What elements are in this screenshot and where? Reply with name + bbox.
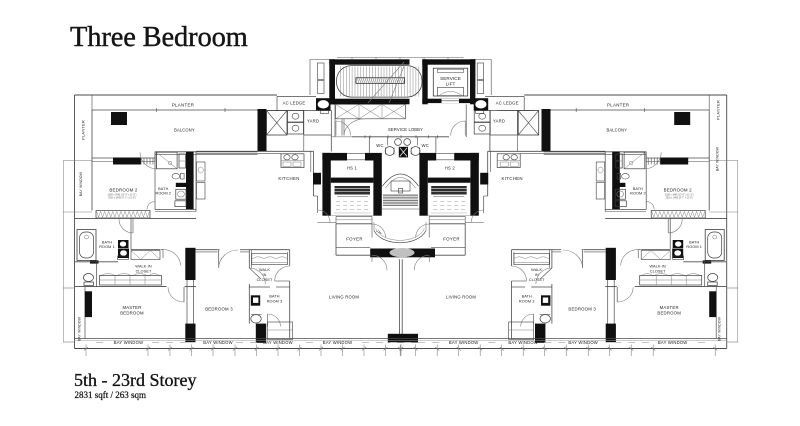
svg-text:ROOM 2: ROOM 2: [156, 192, 172, 196]
svg-text:WALK-IN: WALK-IN: [135, 265, 152, 269]
svg-text:BEDROOM 2: BEDROOM 2: [664, 187, 693, 192]
svg-text:SERVICE LOBBY: SERVICE LOBBY: [388, 127, 423, 132]
svg-text:BAY WINDOW: BAY WINDOW: [323, 340, 353, 345]
svg-text:CLOSET: CLOSET: [650, 270, 666, 274]
svg-text:BATH: BATH: [269, 295, 279, 299]
svg-text:3280 x 3485 (10'-9" x 11'-5"): 3280 x 3485 (10'-9" x 11'-5"): [665, 195, 694, 197]
svg-text:HS 2: HS 2: [445, 166, 456, 171]
svg-text:LIVING ROOM: LIVING ROOM: [329, 295, 359, 300]
svg-text:ROOM 3: ROOM 3: [267, 300, 283, 304]
svg-text:LIVING ROOM: LIVING ROOM: [446, 295, 476, 300]
svg-text:FOYER: FOYER: [443, 236, 460, 241]
svg-text:ROOM 3: ROOM 3: [519, 300, 535, 304]
svg-text:BAY WINDOW: BAY WINDOW: [114, 340, 144, 345]
svg-text:BAY WINDOW: BAY WINDOW: [78, 316, 82, 341]
svg-text:WALK-IN: WALK-IN: [650, 265, 667, 269]
svg-text:ROOM 1: ROOM 1: [99, 245, 115, 249]
svg-text:WC: WC: [376, 143, 383, 148]
svg-text:BAY WINDOW: BAY WINDOW: [203, 340, 233, 345]
svg-text:AC LEDGE: AC LEDGE: [496, 100, 519, 105]
svg-text:KITCHEN: KITCHEN: [278, 176, 299, 181]
svg-text:3280 x 3485 (10'-9" x 11'-5"): 3280 x 3485 (10'-9" x 11'-5"): [108, 195, 137, 197]
svg-text:LIFT: LIFT: [446, 81, 456, 86]
svg-text:BATH: BATH: [522, 295, 532, 299]
svg-text:2920 x 3485 (9'-7" x 11'-5"): 2920 x 3485 (9'-7" x 11'-5"): [108, 198, 136, 200]
svg-text:BAY WINDOW: BAY WINDOW: [658, 340, 688, 345]
svg-text:BALCONY: BALCONY: [174, 128, 195, 133]
svg-text:WALK: WALK: [531, 268, 542, 272]
svg-text:KITCHEN: KITCHEN: [502, 176, 523, 181]
svg-text:WALK: WALK: [259, 268, 270, 272]
svg-text:AC LEDGE: AC LEDGE: [283, 100, 306, 105]
svg-text:BEDROOM: BEDROOM: [120, 311, 144, 316]
svg-text:ROOM 1: ROOM 1: [686, 245, 702, 249]
svg-text:PLANTER: PLANTER: [172, 103, 194, 108]
svg-text:BAY WINDOW: BAY WINDOW: [718, 316, 722, 341]
svg-text:MASTER: MASTER: [122, 305, 141, 310]
svg-text:BAY WINDOW: BAY WINDOW: [263, 340, 293, 345]
svg-text:PLANTER: PLANTER: [607, 103, 629, 108]
svg-text:BAY WINDOW: BAY WINDOW: [449, 340, 479, 345]
svg-text:BALCONY: BALCONY: [606, 128, 627, 133]
svg-text:2920 x 3485 (9'-7" x 11'-5"): 2920 x 3485 (9'-7" x 11'-5"): [665, 198, 693, 200]
svg-text:BEDROOM 3: BEDROOM 3: [568, 307, 596, 312]
svg-text:IN: IN: [535, 273, 539, 277]
svg-text:HS 1: HS 1: [347, 166, 358, 171]
svg-text:BAY WINDOW: BAY WINDOW: [79, 171, 83, 196]
svg-text:BEDROOM: BEDROOM: [657, 311, 681, 316]
svg-text:BEDROOM 3: BEDROOM 3: [205, 307, 233, 312]
svg-text:YARD: YARD: [493, 119, 505, 124]
svg-text:PLANTER: PLANTER: [81, 120, 86, 140]
svg-text:BATH: BATH: [158, 187, 168, 191]
svg-text:BATH: BATH: [689, 241, 699, 245]
svg-text:BATH: BATH: [102, 241, 112, 245]
svg-text:ROOM 2: ROOM 2: [630, 192, 646, 196]
svg-text:BATH: BATH: [633, 187, 643, 191]
svg-text:WC: WC: [422, 143, 429, 148]
svg-text:SERVICE: SERVICE: [440, 76, 461, 81]
svg-text:BEDROOM 2: BEDROOM 2: [109, 187, 138, 192]
svg-text:BAY WINDOW: BAY WINDOW: [568, 340, 598, 345]
svg-text:PLANTER: PLANTER: [716, 100, 721, 120]
svg-text:CLOSET: CLOSET: [136, 270, 152, 274]
svg-text:BAY WINDOW: BAY WINDOW: [508, 340, 538, 345]
svg-text:MASTER: MASTER: [660, 305, 679, 310]
svg-text:BAY WINDOW: BAY WINDOW: [716, 146, 720, 171]
svg-text:FOYER: FOYER: [346, 236, 363, 241]
svg-text:YARD: YARD: [307, 119, 319, 124]
